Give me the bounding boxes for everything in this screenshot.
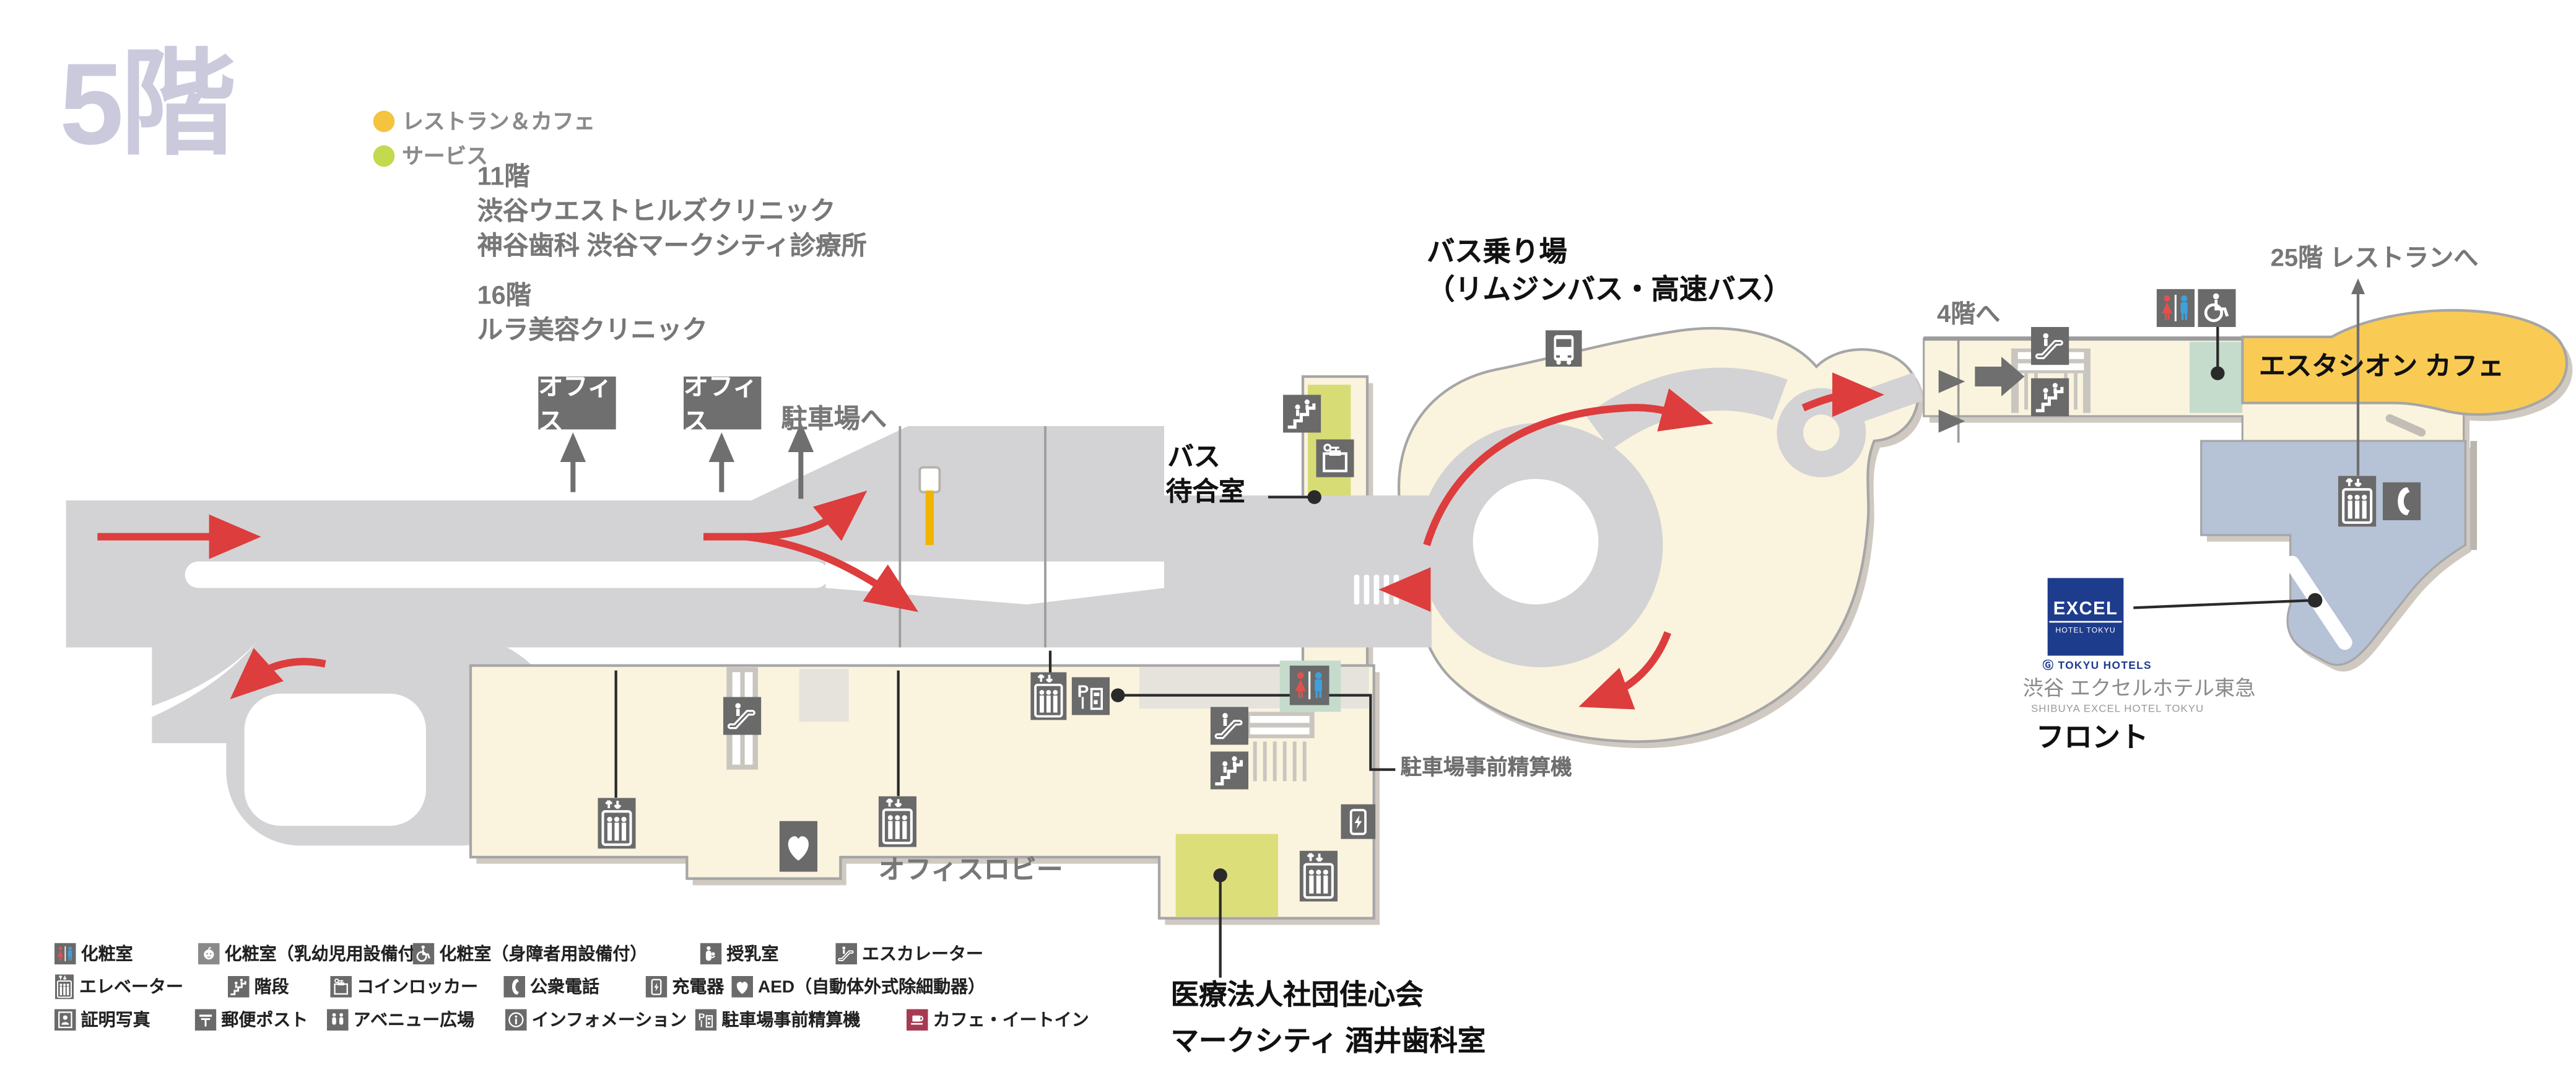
charger-icon bbox=[646, 976, 668, 998]
parking-payment-icon bbox=[1072, 677, 1110, 715]
office-lobby-label: オフィスロビー bbox=[879, 855, 1063, 888]
hotel-front-label: フロント bbox=[2036, 720, 2148, 756]
stairs-icon bbox=[1283, 395, 1321, 432]
elevator-icon bbox=[598, 798, 635, 849]
wheelchair-icon bbox=[2198, 289, 2235, 327]
floor-guide-page: 5階 レストラン＆カフェ サービス 11階 渋谷ウエストヒルズクリニック 神谷歯… bbox=[0, 0, 2576, 1090]
to-25f-label: 25階 レストランへ bbox=[2271, 245, 2479, 276]
parking-payment-label: 駐車場事前精算機 bbox=[1400, 755, 1572, 782]
elevator-icon bbox=[879, 796, 916, 847]
stairs-icon bbox=[1211, 751, 1248, 789]
cafe-icon bbox=[907, 1009, 928, 1031]
phone-icon bbox=[503, 976, 525, 998]
elevator-icon bbox=[1300, 850, 1338, 902]
bus-icon bbox=[1546, 329, 1582, 368]
elevator-icon bbox=[2338, 476, 2376, 527]
stairs-icon bbox=[228, 976, 250, 998]
area-legend-service: サービス bbox=[350, 117, 488, 198]
dental-clinic-label-1: 医療法人社団佳心会 bbox=[1171, 978, 1424, 1013]
excel-hotel-logo: EXCEL HOTEL TOKYU bbox=[2048, 578, 2124, 655]
restroom-icon bbox=[2157, 289, 2195, 327]
estacion-cafe-label: エスタシオン カフェ bbox=[2259, 352, 2504, 385]
to-parking-label: 駐車場へ bbox=[781, 404, 887, 437]
note-16f-line1: ルラ美容クリニック bbox=[477, 315, 708, 347]
restroom-icon bbox=[54, 943, 76, 965]
note-16f-title: 16階 bbox=[477, 281, 531, 313]
service-dot bbox=[374, 146, 396, 167]
parking-payment-icon bbox=[695, 1009, 717, 1031]
note-11f-line2: 神谷歯科 渋谷マークシティ診療所 bbox=[477, 231, 867, 263]
office-label-2: オフィス bbox=[684, 377, 761, 429]
elevator-icon bbox=[1030, 672, 1067, 720]
escalator-icon bbox=[2031, 327, 2069, 365]
floor-title: 5階 bbox=[59, 33, 233, 177]
tokyu-hotels-logotype: Ⓖ TOKYU HOTELS bbox=[2043, 661, 2152, 674]
stairs-icon bbox=[2031, 378, 2069, 416]
note-11f-title: 11階 bbox=[477, 162, 530, 194]
restroom-icon bbox=[1290, 666, 1329, 705]
locker-icon bbox=[1316, 439, 1354, 477]
nursing-icon bbox=[700, 943, 722, 965]
office-label-1: オフィス bbox=[538, 377, 616, 429]
phone-icon bbox=[2383, 482, 2421, 520]
bus-waiting-label-1: バス bbox=[1167, 443, 1220, 476]
post-icon bbox=[195, 1009, 217, 1031]
photo-icon bbox=[54, 1009, 76, 1031]
escalator-icon bbox=[723, 697, 761, 735]
wheelchair-icon bbox=[413, 943, 435, 965]
hotel-name-jp: 渋谷 エクセルホテル東急 bbox=[2023, 677, 2256, 703]
escalator-icon bbox=[835, 943, 857, 965]
info-icon bbox=[505, 1009, 527, 1031]
locker-icon bbox=[330, 976, 352, 998]
charger-icon bbox=[1341, 803, 1375, 840]
hotel-area bbox=[2201, 441, 2477, 665]
plaza-icon bbox=[327, 1009, 349, 1031]
bus-stop-label-1: バス乗り場 bbox=[1427, 235, 1567, 270]
aed-icon bbox=[731, 976, 753, 998]
note-11f-line1: 渋谷ウエストヒルズクリニック bbox=[477, 196, 836, 229]
to-4f-label: 4階へ bbox=[1937, 300, 2000, 331]
dental-clinic-label-2: マークシティ 酒井歯科室 bbox=[1171, 1024, 1486, 1059]
aed-icon bbox=[780, 821, 817, 872]
bus-stop-label-2: （リムジンバス・高速バス） bbox=[1427, 272, 1791, 308]
baby-icon bbox=[198, 943, 220, 965]
escalator-icon bbox=[1211, 707, 1248, 744]
bus-waiting-label-2: 待合室 bbox=[1166, 477, 1245, 510]
hotel-name-en: SHIBUYA EXCEL HOTEL TOKYU bbox=[2031, 704, 2204, 717]
elevator-icon bbox=[54, 974, 74, 999]
